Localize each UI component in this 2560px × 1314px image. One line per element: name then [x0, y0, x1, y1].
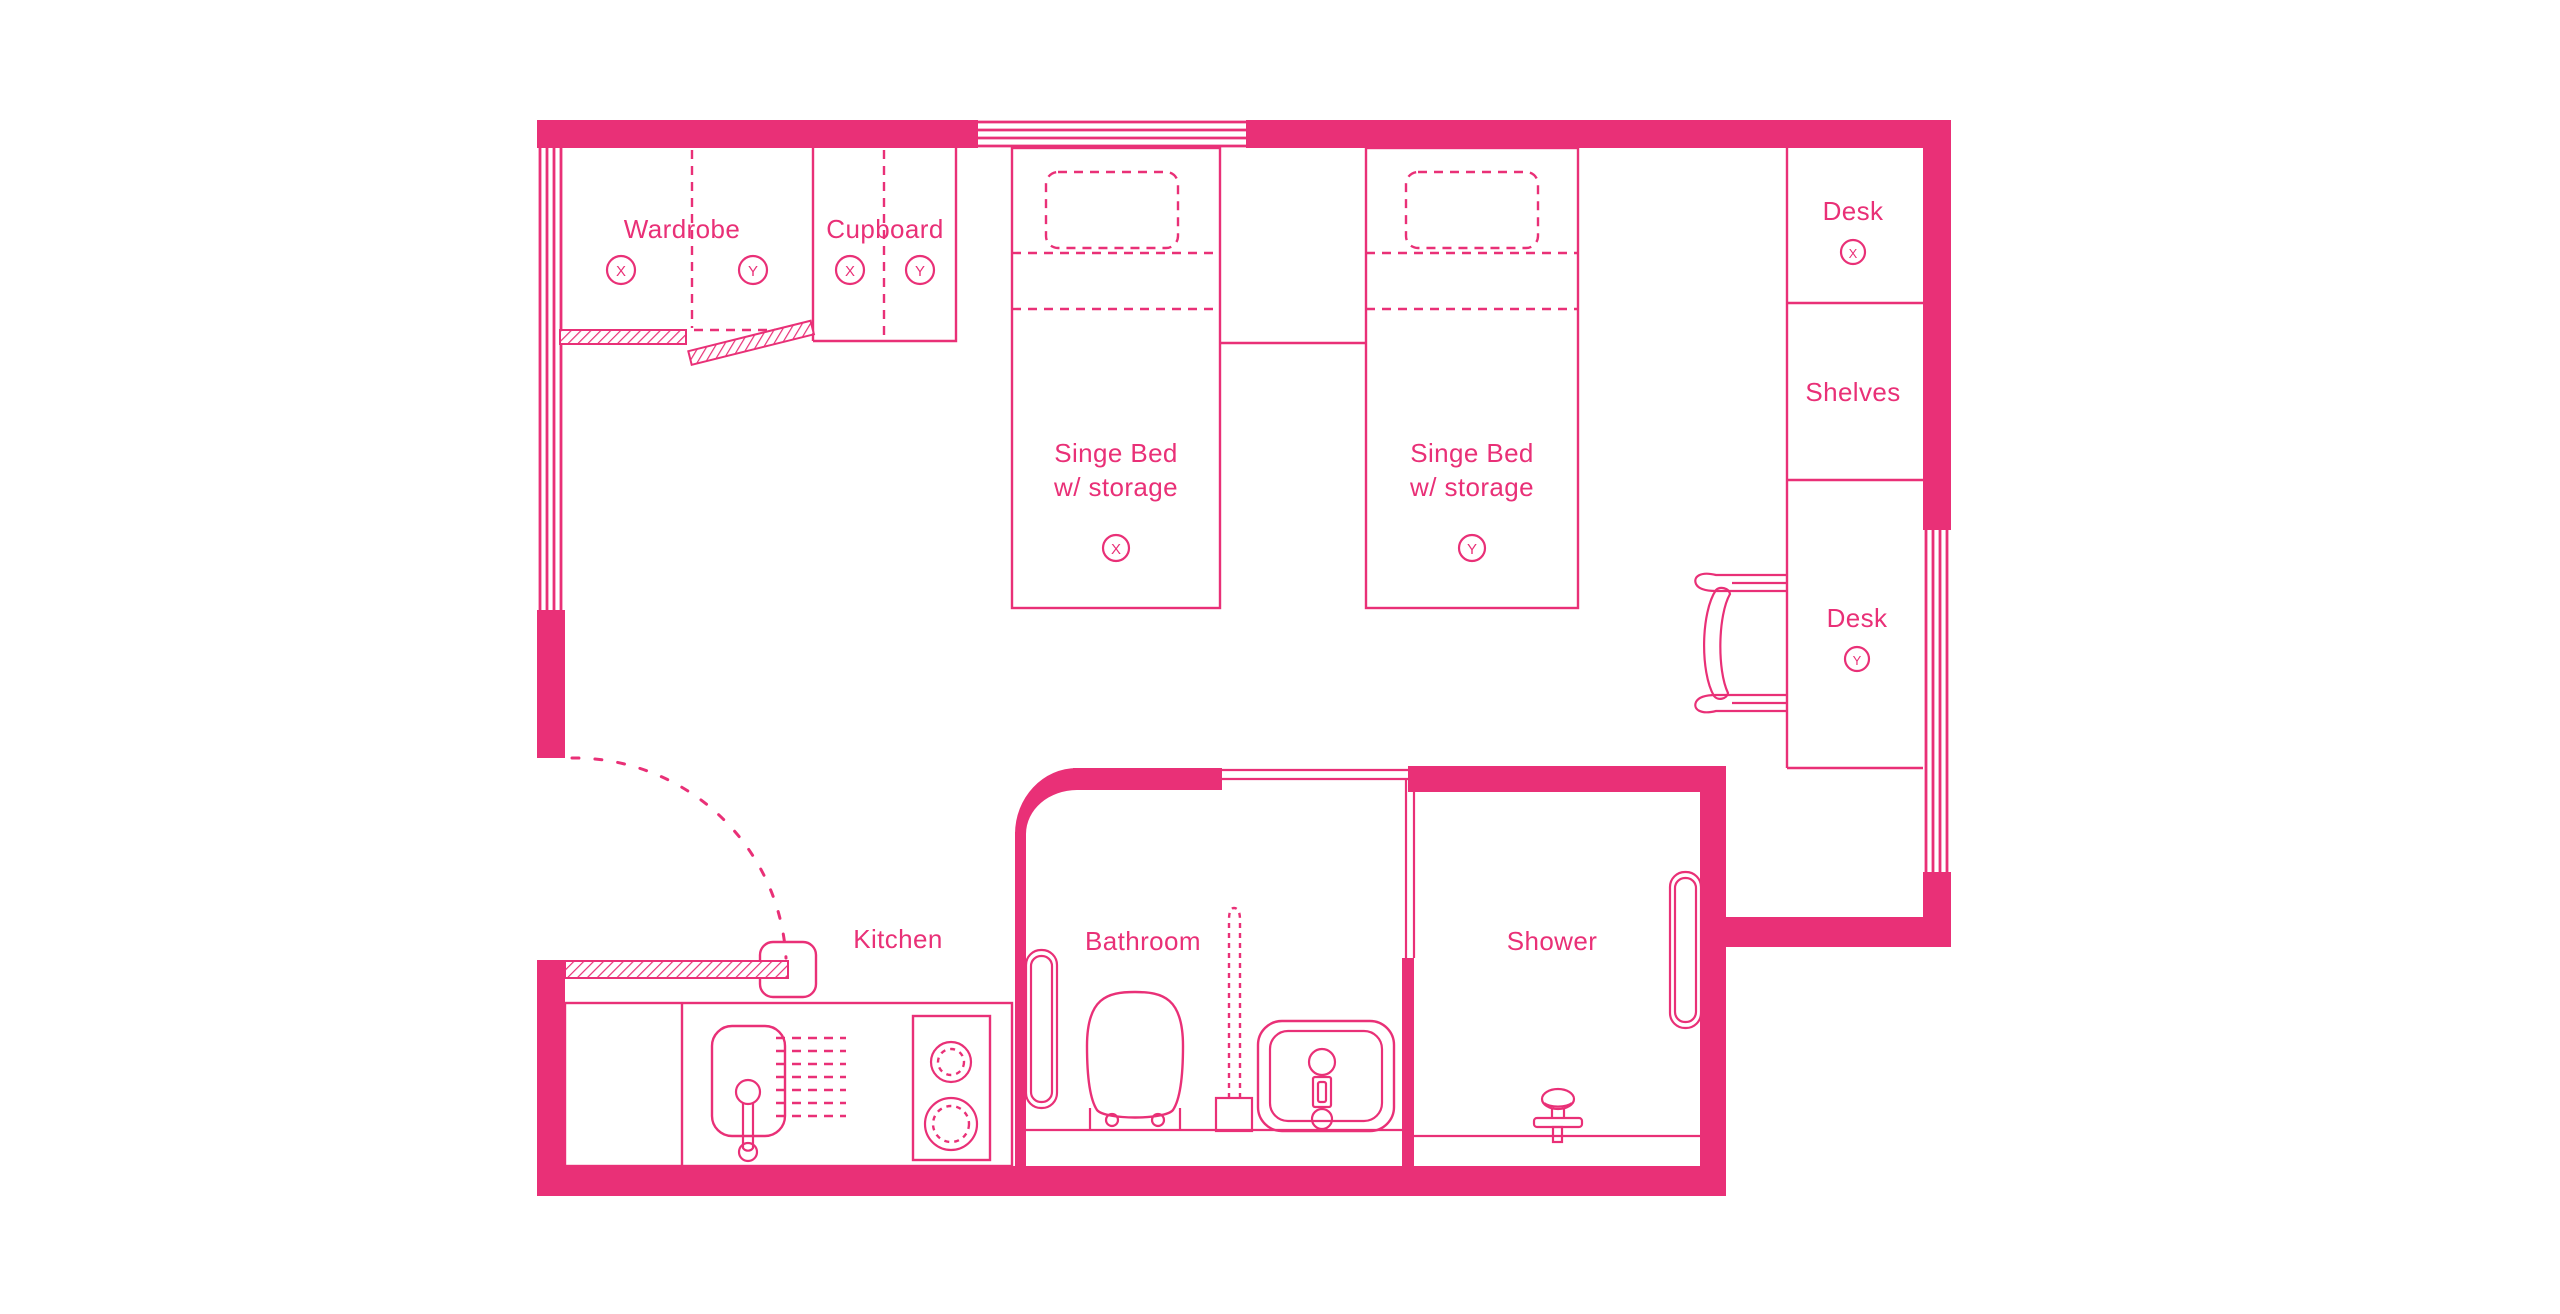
right-wall-top — [1923, 120, 1951, 530]
wardrobe-label: Wardrobe — [624, 214, 740, 244]
bed-x-label-line1: Singe Bed — [1054, 438, 1178, 468]
bathroom-door-leaf — [1026, 950, 1057, 1108]
bathroom-label: Bathroom — [1085, 926, 1201, 956]
top-wall-right — [1246, 120, 1951, 148]
shower-drain-fixture — [1534, 1089, 1582, 1142]
wardrobe-marker-y: Y — [739, 256, 767, 284]
toilet — [1087, 992, 1183, 1130]
bathroom-top-wall — [1073, 768, 1222, 790]
wardrobe-door-open — [688, 321, 814, 365]
svg-text:Y: Y — [1467, 541, 1477, 558]
desk-x-label: Desk — [1823, 196, 1884, 226]
bed-x-pillow — [1046, 172, 1178, 248]
wardrobe-marker-x: X — [607, 256, 635, 284]
wardrobe-door-closed — [560, 330, 686, 344]
bed-y-marker: Y — [1459, 535, 1485, 561]
bathroom-shower-partition — [1402, 779, 1414, 1166]
kitchen-sink — [712, 1026, 785, 1161]
storage-column: Desk X Shelves Desk Y — [1787, 148, 1923, 768]
bed-y-label-line1: Singe Bed — [1410, 438, 1534, 468]
wardrobe: Wardrobe X Y — [560, 148, 814, 365]
cupboard-label: Cupboard — [826, 214, 943, 244]
left-window — [540, 148, 561, 612]
entry-door-leaf — [565, 961, 788, 978]
entry-door — [565, 758, 816, 997]
cupboard-marker-y: Y — [906, 256, 934, 284]
stove-outline — [913, 1016, 990, 1160]
svg-text:X: X — [616, 263, 626, 280]
desk-chair — [1695, 574, 1787, 713]
left-wall-bottom — [537, 960, 565, 1196]
bathroom-basin — [1258, 1021, 1394, 1131]
shower-door-leaf — [1670, 872, 1701, 1028]
bathroom-left-wall — [1015, 832, 1026, 1166]
basin-faucet-ring — [1309, 1049, 1335, 1075]
top-wall-left — [537, 120, 978, 148]
single-bed-x: Singe Bed w/ storage X — [1012, 148, 1220, 608]
bathroom-sliding-partition — [1222, 770, 1408, 779]
svg-text:Y: Y — [748, 263, 758, 280]
sink-faucet-cap — [739, 1143, 757, 1161]
shower-top-wall — [1408, 766, 1726, 792]
bottom-wall — [537, 1166, 1726, 1196]
sink-faucet-ring — [736, 1080, 760, 1104]
shower: Shower — [1408, 766, 1726, 1196]
floor-plan: Wardrobe X Y Cupboard X Y Singe Bed w/ s… — [0, 0, 2560, 1314]
bed-y-label-line2: w/ storage — [1409, 472, 1534, 502]
desk-y-label: Desk — [1827, 603, 1888, 633]
chair-backrest — [1704, 588, 1730, 699]
stove-burner-large-inner — [933, 1106, 969, 1142]
shelves-label: Shelves — [1805, 377, 1900, 407]
stove — [913, 1016, 990, 1160]
svg-text:X: X — [1849, 246, 1858, 261]
bed-x-marker: X — [1103, 535, 1129, 561]
cupboard: Cupboard X Y — [813, 148, 956, 341]
right-window — [1926, 530, 1947, 872]
shower-label: Shower — [1507, 926, 1598, 956]
svg-text:Y: Y — [1853, 653, 1862, 668]
svg-text:X: X — [1111, 541, 1121, 558]
single-bed-y: Singe Bed w/ storage Y — [1366, 148, 1578, 608]
dish-rack — [776, 1038, 846, 1116]
kitchen-label: Kitchen — [853, 924, 943, 954]
entry-door-swing-arc — [572, 758, 786, 958]
desk-y-marker: Y — [1845, 647, 1869, 671]
desk-x-marker: X — [1841, 240, 1865, 264]
cupboard-marker-x: X — [836, 256, 864, 284]
svg-text:Y: Y — [915, 263, 925, 280]
bathroom-corner-wall — [1015, 768, 1077, 834]
shower-right-wall — [1700, 766, 1726, 1196]
basin-faucet-cap — [1312, 1109, 1332, 1129]
windows — [540, 122, 1947, 872]
toilet-brush — [1216, 908, 1252, 1131]
top-window — [978, 122, 1246, 146]
bathroom: Bathroom — [1015, 768, 1414, 1166]
stove-burner-small-inner — [938, 1049, 964, 1075]
bed-y-pillow — [1406, 172, 1538, 248]
svg-text:X: X — [845, 263, 855, 280]
left-wall-mid — [537, 610, 565, 758]
bed-x-label-line2: w/ storage — [1053, 472, 1178, 502]
lower-right-wall-bar — [1712, 917, 1951, 947]
